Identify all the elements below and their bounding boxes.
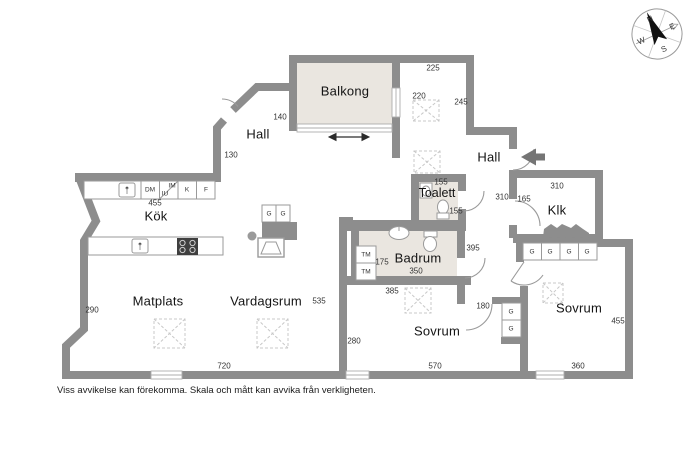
floorplan-page: N E S W Balkong Hall Hall Kök Matplats V… <box>0 0 690 460</box>
dim-balkong-side: 140 <box>273 113 286 122</box>
dim-badrum-h: 395 <box>466 244 479 253</box>
dim-hall-right: 245 <box>454 98 467 107</box>
dim-sovrum1-h: 280 <box>347 337 360 346</box>
dim-sovrum2-h: 455 <box>611 317 624 326</box>
dim-toalett-h: 155 <box>449 207 462 216</box>
appliance-tm-1: TM <box>361 252 370 259</box>
dim-living-h: 290 <box>85 306 98 315</box>
room-label-matplats: Matplats <box>133 294 184 309</box>
disclaimer-text: Viss avvikelse kan förekomma. Skala och … <box>57 385 376 396</box>
wardrobe-g: G <box>280 211 285 218</box>
room-label-sovrum-right: Sovrum <box>556 301 602 316</box>
appliance-f: F <box>204 187 208 194</box>
sliding-door-arrow <box>329 134 369 141</box>
wardrobe-g: G <box>508 309 513 316</box>
dim-kok-bench: 455 <box>148 199 161 208</box>
pillar-icon <box>248 232 257 241</box>
wardrobe-g: G <box>508 326 513 333</box>
appliance-tm-2: TM <box>361 269 370 276</box>
appliance-im: IM <box>168 183 175 190</box>
dim-vardagsrum-w: 535 <box>312 297 325 306</box>
room-label-hall-upper: Hall <box>246 127 269 142</box>
dim-badrum-tm: 175 <box>375 258 388 267</box>
dim-sovrum1-w: 570 <box>428 362 441 371</box>
room-label-klk: Klk <box>548 203 567 218</box>
fireplace-block <box>248 205 298 257</box>
dim-badrum-bottom: 385 <box>385 287 398 296</box>
dim-sovrum1-door: 180 <box>476 302 489 311</box>
room-label-hall-entry: Hall <box>477 150 500 165</box>
dim-klk-top: 310 <box>550 182 563 191</box>
wardrobe-g: G <box>547 249 552 256</box>
dim-klk-door: 165 <box>517 195 530 204</box>
appliance-dm: DM <box>145 187 155 194</box>
dim-balkong-door: 220 <box>412 92 425 101</box>
appliance-k: K <box>185 187 189 194</box>
room-label-vardagsrum: Vardagsrum <box>230 294 302 309</box>
wardrobe-g: G <box>566 249 571 256</box>
stove-icon <box>177 238 198 255</box>
room-label-kok: Kök <box>144 209 167 224</box>
room-label-balkong: Balkong <box>321 84 369 99</box>
wardrobe-g: G <box>266 211 271 218</box>
dim-living-w: 720 <box>217 362 230 371</box>
room-label-sovrum-left: Sovrum <box>414 324 460 339</box>
dim-toalett-w: 155 <box>434 178 447 187</box>
appliance-iu: IU <box>162 191 169 198</box>
compass-rose: N E S W <box>624 1 690 67</box>
dim-sovrum2-w: 360 <box>571 362 584 371</box>
room-label-badrum: Badrum <box>395 251 442 266</box>
dim-hall-upper-h: 130 <box>224 151 237 160</box>
kitchen-island <box>88 237 223 255</box>
dim-badrum-w: 350 <box>409 267 422 276</box>
wc-toilet-icon <box>438 200 449 214</box>
entrance-arrow <box>521 149 545 166</box>
wardrobe-g: G <box>584 249 589 256</box>
wardrobe-g: G <box>529 249 534 256</box>
dim-hall-top: 225 <box>426 64 439 73</box>
dim-klk-side: 310 <box>495 193 508 202</box>
room-label-toalett: Toalett <box>419 186 456 200</box>
